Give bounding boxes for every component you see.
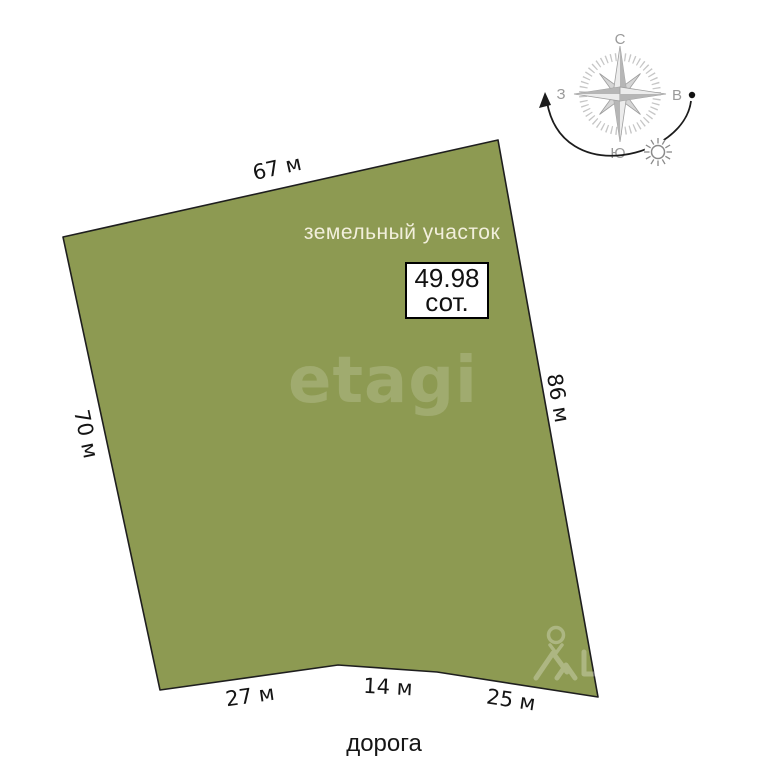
area-box: 49.98 сот. <box>405 262 489 319</box>
sun-path-dot <box>689 92 695 98</box>
plot-title: земельный участок <box>304 221 500 245</box>
plot-diagram: С Ю З В <box>0 0 768 768</box>
sun-icon <box>644 138 672 166</box>
compass-label-east: В <box>672 87 682 104</box>
compass-label-north: С <box>615 31 626 48</box>
compass-label-south: Ю <box>610 145 625 162</box>
area-unit: сот. <box>407 290 487 314</box>
etagi-watermark: etagi <box>288 344 478 418</box>
compass-cardinal-needles <box>574 46 666 142</box>
compass-label-west: З <box>556 86 565 103</box>
side-length-bottom-middle: 14 м <box>363 674 413 701</box>
road-label: дорога <box>346 730 422 758</box>
sun-path-arrow-icon <box>539 92 551 108</box>
